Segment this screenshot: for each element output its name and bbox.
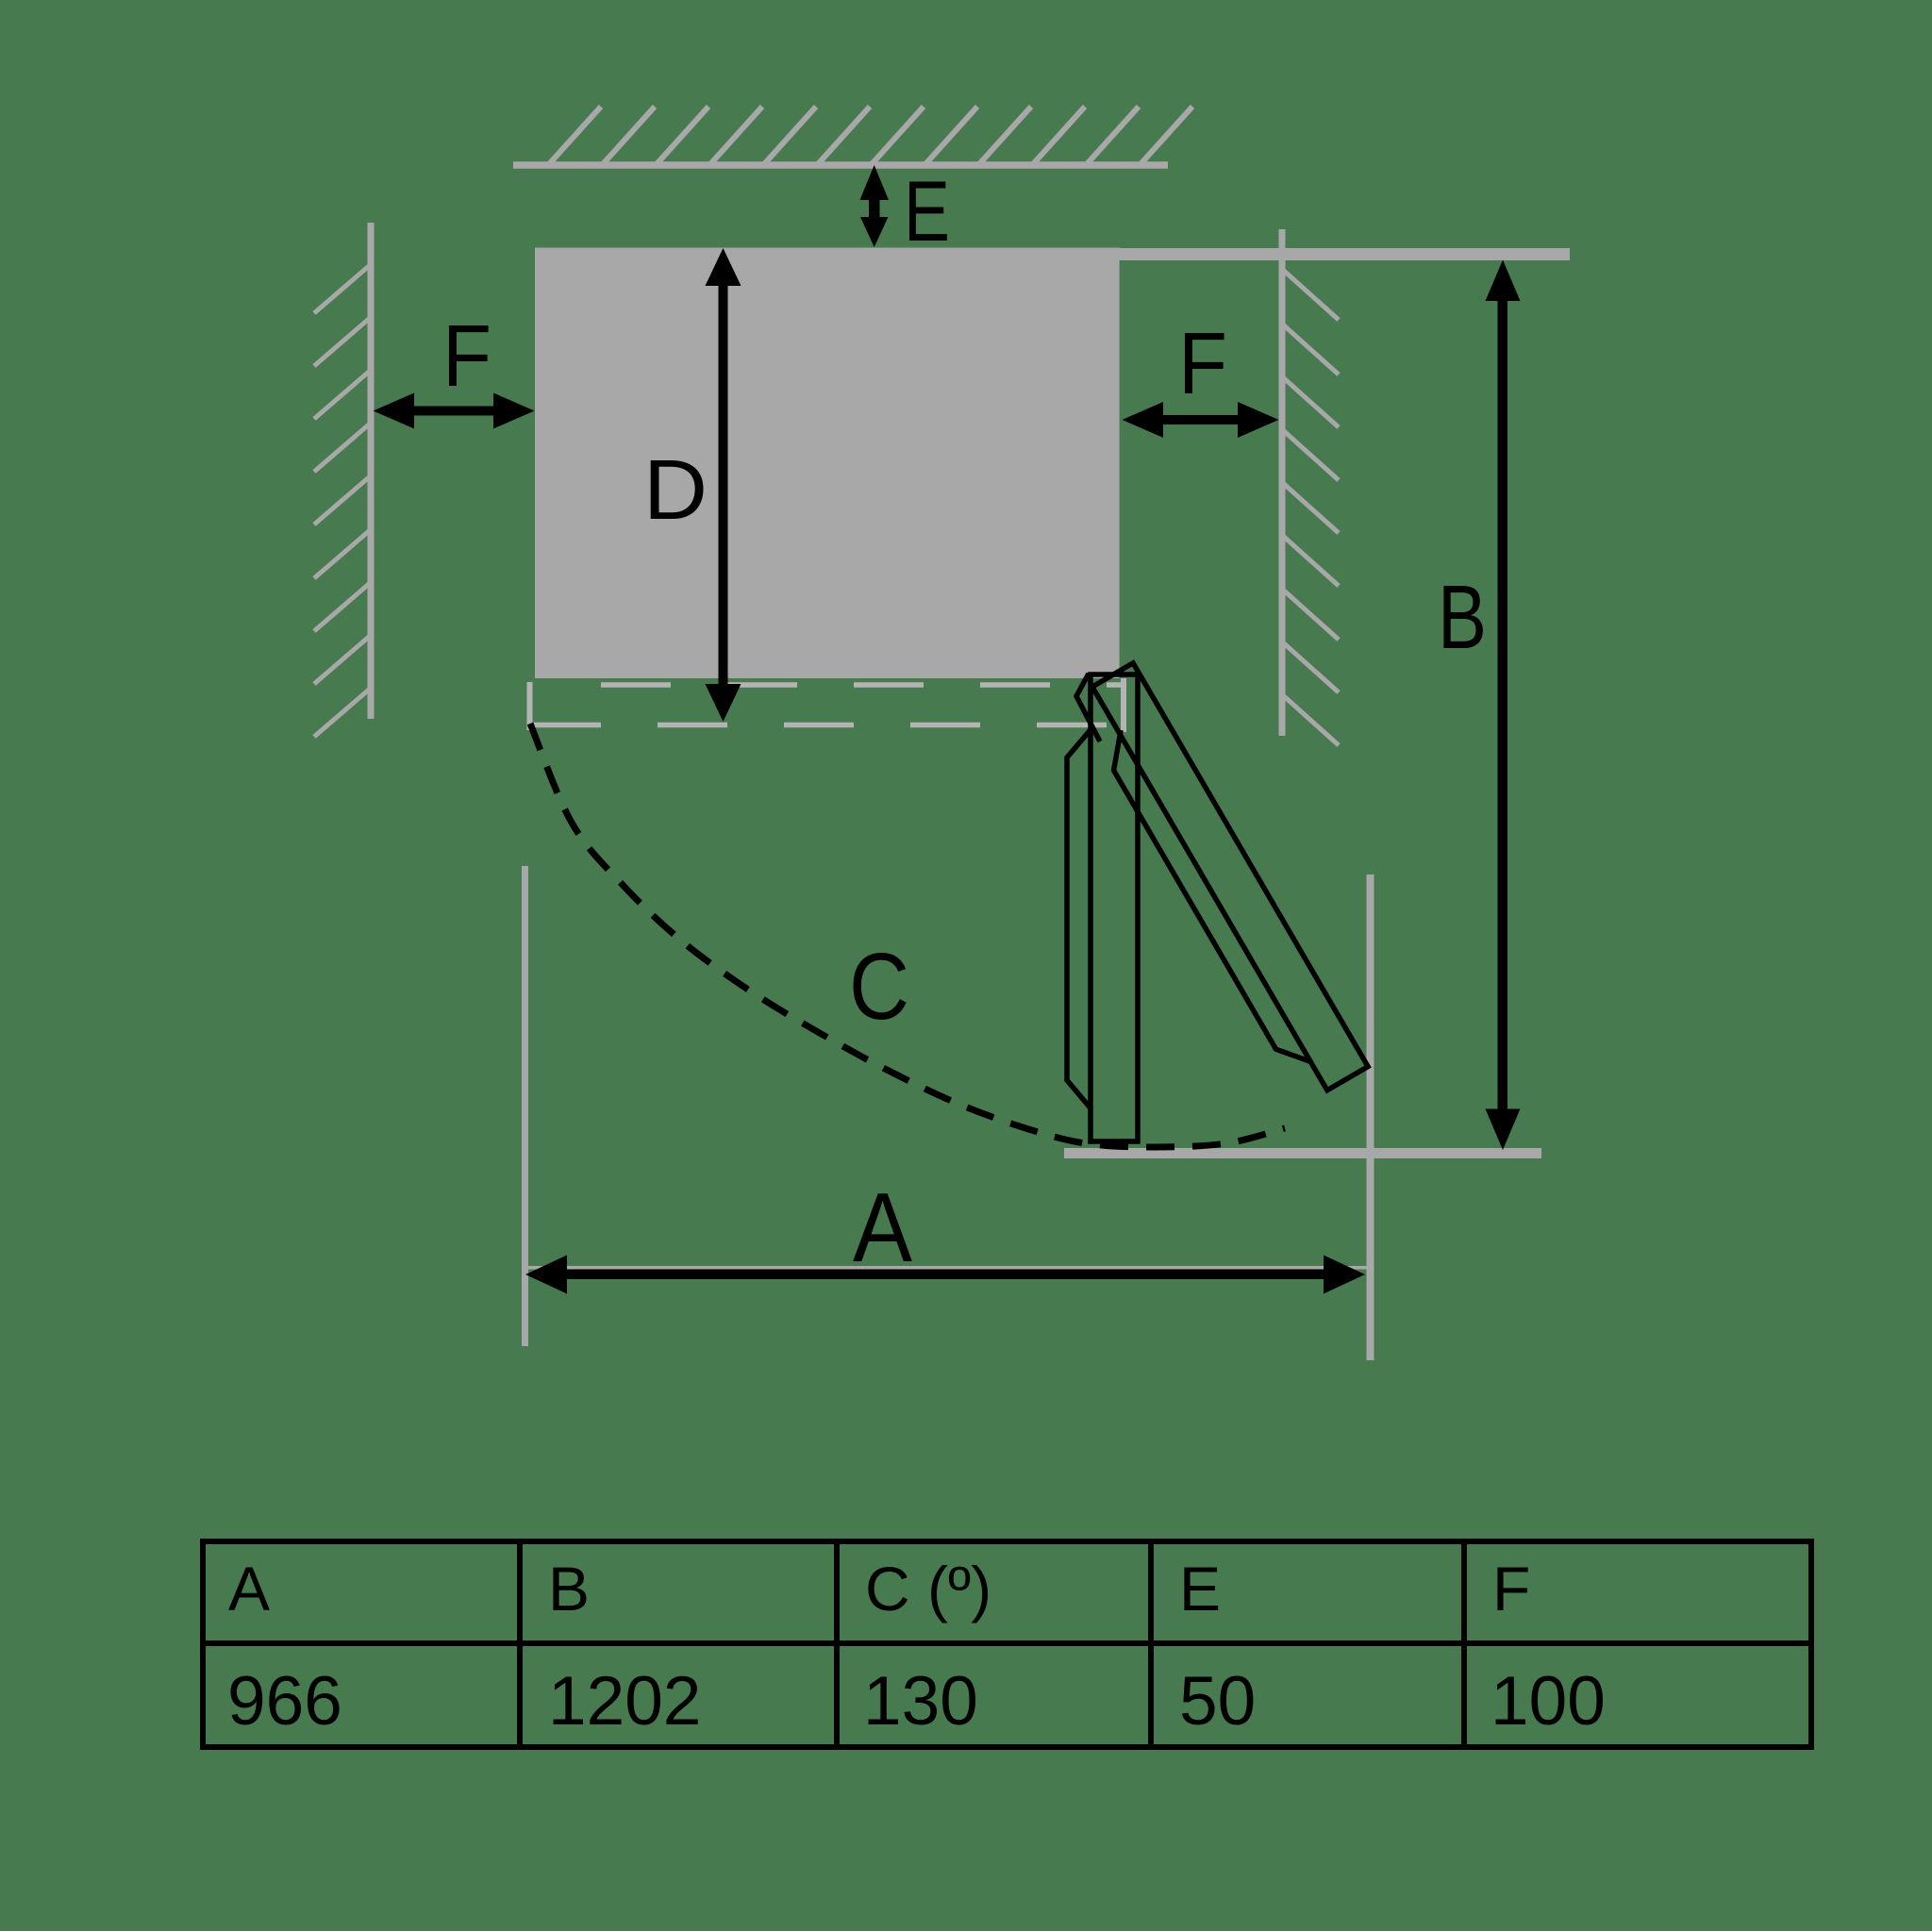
svg-text:C (º): C (º) [865,1554,991,1623]
svg-text:B: B [1438,567,1487,668]
svg-text:50: 50 [1179,1663,1256,1740]
svg-text:E: E [904,164,950,259]
svg-text:D: D [643,443,708,538]
svg-text:F: F [442,307,491,405]
svg-text:C: C [849,934,909,1040]
svg-text:1202: 1202 [548,1663,701,1740]
svg-text:F: F [1178,314,1227,412]
svg-text:B: B [548,1554,590,1623]
svg-text:E: E [1179,1554,1221,1623]
svg-text:F: F [1492,1554,1530,1623]
svg-text:A: A [853,1174,913,1283]
svg-text:A: A [228,1554,270,1623]
svg-text:966: 966 [227,1663,342,1740]
svg-text:100: 100 [1491,1663,1606,1740]
svg-text:130: 130 [863,1663,978,1740]
